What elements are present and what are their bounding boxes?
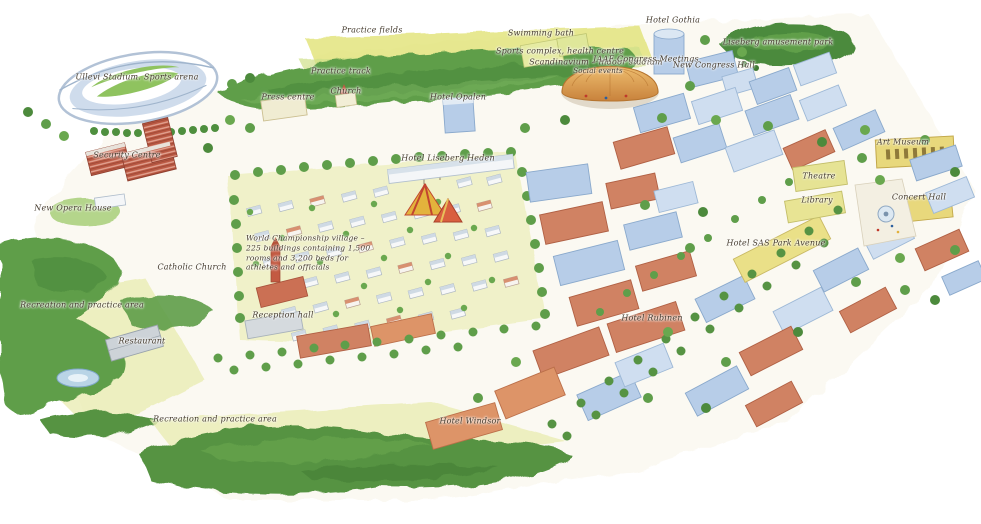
map-illustration <box>0 0 981 524</box>
illustrated-city-map: Practice fields Hotel Gothia Liseberg am… <box>0 0 981 524</box>
